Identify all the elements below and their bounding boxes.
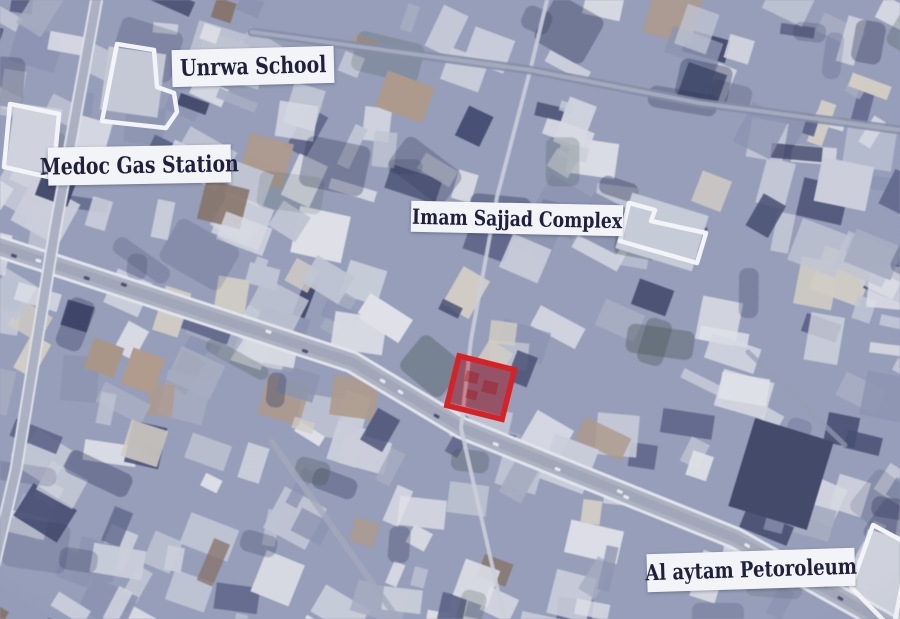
map-annotations-layer (0, 0, 900, 619)
unrwa-school-outline (102, 44, 177, 128)
target-building-marker (447, 356, 515, 419)
label-medoc-gas-station-text: Medoc Gas Station (40, 150, 239, 180)
satellite-map-view: Unrwa School Medoc Gas Station Imam Sajj… (0, 0, 900, 619)
label-al-aytam-petroleum: Al aytam Petoroleum (646, 548, 855, 593)
label-medoc-gas-station: Medoc Gas Station (48, 144, 232, 185)
label-unrwa-school-text: Unrwa School (180, 51, 327, 82)
label-al-aytam-petroleum-text: Al aytam Petoroleum (645, 554, 857, 587)
imam-sajjad-complex-outline (620, 203, 706, 263)
label-imam-sajjad-complex-text: Imam Sajjad Complex (412, 204, 623, 233)
label-imam-sajjad-complex: Imam Sajjad Complex (411, 201, 624, 236)
target-highlight-box (447, 356, 515, 419)
al-aytam-petroleum-outline (851, 525, 900, 619)
label-unrwa-school: Unrwa School (172, 46, 335, 87)
